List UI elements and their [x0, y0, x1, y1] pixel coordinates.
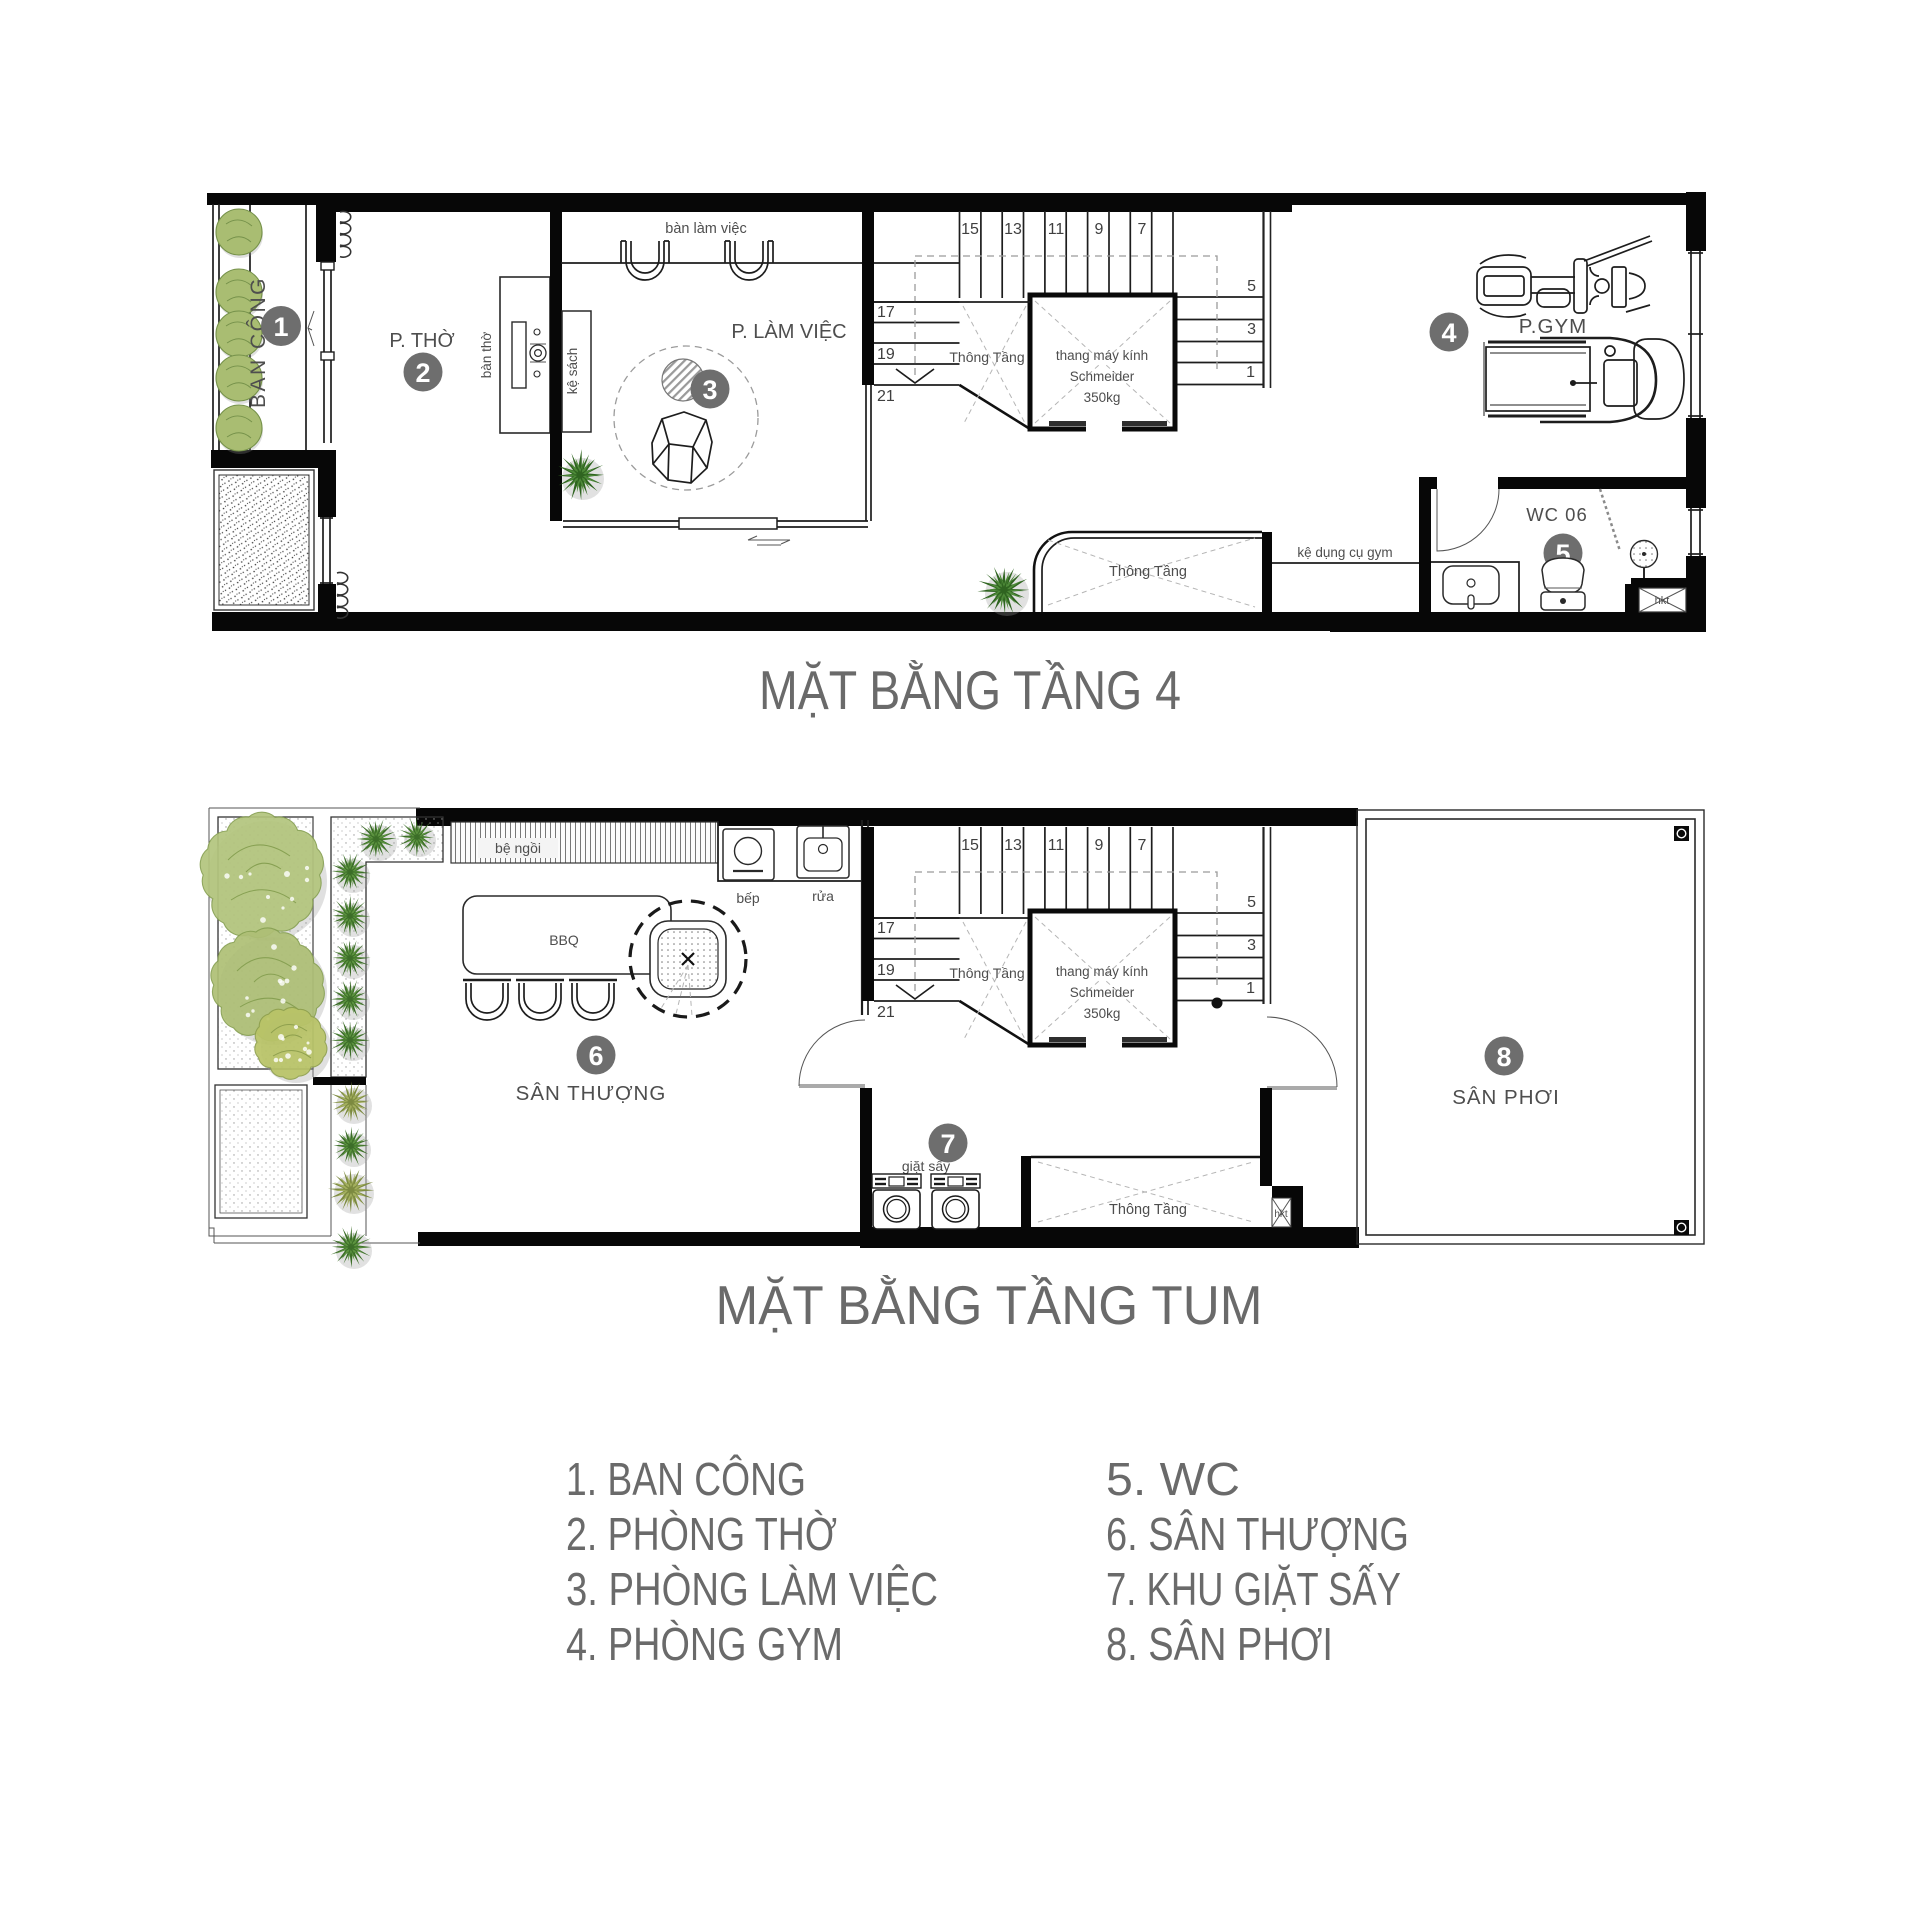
svg-text:kệ dụng cụ gym: kệ dụng cụ gym [1297, 545, 1392, 560]
svg-text:3. PHÒNG LÀM VIỆC: 3. PHÒNG LÀM VIỆC [566, 1563, 938, 1615]
svg-text:MẶT BẰNG TẦNG TUM: MẶT BẰNG TẦNG TUM [716, 1274, 1263, 1336]
svg-text:hkt: hkt [1274, 1209, 1288, 1220]
svg-text:1: 1 [273, 312, 288, 342]
svg-text:5: 5 [1247, 278, 1256, 295]
svg-text:8: 8 [1496, 1042, 1511, 1072]
svg-text:1: 1 [1246, 364, 1255, 381]
svg-text:21: 21 [877, 388, 895, 405]
svg-text:7: 7 [940, 1129, 955, 1159]
svg-text:1: 1 [1246, 980, 1255, 997]
svg-text:MẶT BẰNG TẦNG 4: MẶT BẰNG TẦNG 4 [759, 659, 1181, 721]
svg-text:15: 15 [961, 221, 979, 238]
svg-text:11: 11 [1048, 221, 1065, 238]
svg-text:3: 3 [1247, 321, 1256, 338]
svg-text:rửa: rửa [812, 888, 834, 904]
svg-text:thang máy kính: thang máy kính [1056, 964, 1148, 979]
svg-text:15: 15 [961, 837, 979, 854]
svg-text:bệ ngồi: bệ ngồi [495, 840, 541, 856]
svg-text:11: 11 [1048, 837, 1065, 854]
svg-text:5. WC: 5. WC [1106, 1453, 1240, 1505]
svg-text:BAN CÔNG: BAN CÔNG [247, 276, 270, 408]
svg-text:P. LÀM VIỆC: P. LÀM VIỆC [731, 320, 846, 343]
svg-text:WC 06: WC 06 [1526, 504, 1588, 525]
svg-text:5: 5 [1247, 894, 1256, 911]
svg-text:6. SÂN THƯỢNG: 6. SÂN THƯỢNG [1106, 1508, 1409, 1560]
svg-text:SÂN PHƠI: SÂN PHƠI [1452, 1086, 1560, 1109]
svg-text:19: 19 [877, 346, 895, 363]
svg-text:13: 13 [1004, 221, 1022, 238]
svg-text:Schmeider: Schmeider [1070, 985, 1135, 1000]
svg-text:bàn thờ: bàn thờ [479, 332, 494, 379]
svg-text:Thông Tầng: Thông Tầng [1109, 1202, 1187, 1218]
svg-text:9: 9 [1095, 221, 1104, 238]
svg-text:P.GYM: P.GYM [1519, 315, 1587, 338]
svg-text:Thông Tầng: Thông Tầng [1109, 564, 1187, 580]
svg-text:2: 2 [415, 358, 430, 388]
svg-text:4. PHÒNG GYM: 4. PHÒNG GYM [566, 1618, 843, 1670]
svg-text:SÂN THƯỢNG: SÂN THƯỢNG [516, 1082, 667, 1105]
svg-text:7: 7 [1138, 837, 1147, 854]
svg-text:Schmeider: Schmeider [1070, 369, 1135, 384]
svg-text:17: 17 [877, 920, 895, 937]
svg-text:thang máy kính: thang máy kính [1056, 348, 1148, 363]
svg-text:7: 7 [1138, 221, 1147, 238]
svg-text:giặt sấy: giặt sấy [902, 1158, 950, 1174]
svg-text:hkt: hkt [1655, 595, 1670, 607]
svg-text:2. PHÒNG THỜ: 2. PHÒNG THỜ [566, 1508, 837, 1560]
svg-text:6: 6 [588, 1041, 603, 1071]
svg-text:Thông Tầng: Thông Tầng [949, 965, 1024, 981]
svg-text:17: 17 [877, 304, 895, 321]
svg-text:kệ sách: kệ sách [565, 348, 580, 395]
svg-text:4: 4 [1441, 318, 1456, 348]
svg-text:350kg: 350kg [1084, 390, 1121, 405]
svg-text:Thông Tầng: Thông Tầng [949, 349, 1024, 365]
svg-text:3: 3 [702, 375, 717, 405]
svg-text:bàn làm việc: bàn làm việc [665, 221, 746, 237]
svg-text:7. KHU GIẶT SẤY: 7. KHU GIẶT SẤY [1106, 1563, 1401, 1615]
svg-text:19: 19 [877, 962, 895, 979]
svg-text:bếp: bếp [736, 890, 760, 906]
svg-text:1. BAN CÔNG: 1. BAN CÔNG [566, 1453, 806, 1505]
svg-text:9: 9 [1095, 837, 1104, 854]
svg-text:21: 21 [877, 1004, 895, 1021]
svg-text:8. SÂN PHƠI: 8. SÂN PHƠI [1106, 1618, 1333, 1670]
svg-text:13: 13 [1004, 837, 1022, 854]
svg-text:P. THỜ: P. THỜ [389, 329, 454, 352]
svg-text:BBQ: BBQ [549, 932, 579, 948]
svg-text:350kg: 350kg [1084, 1006, 1121, 1021]
svg-text:3: 3 [1247, 937, 1256, 954]
